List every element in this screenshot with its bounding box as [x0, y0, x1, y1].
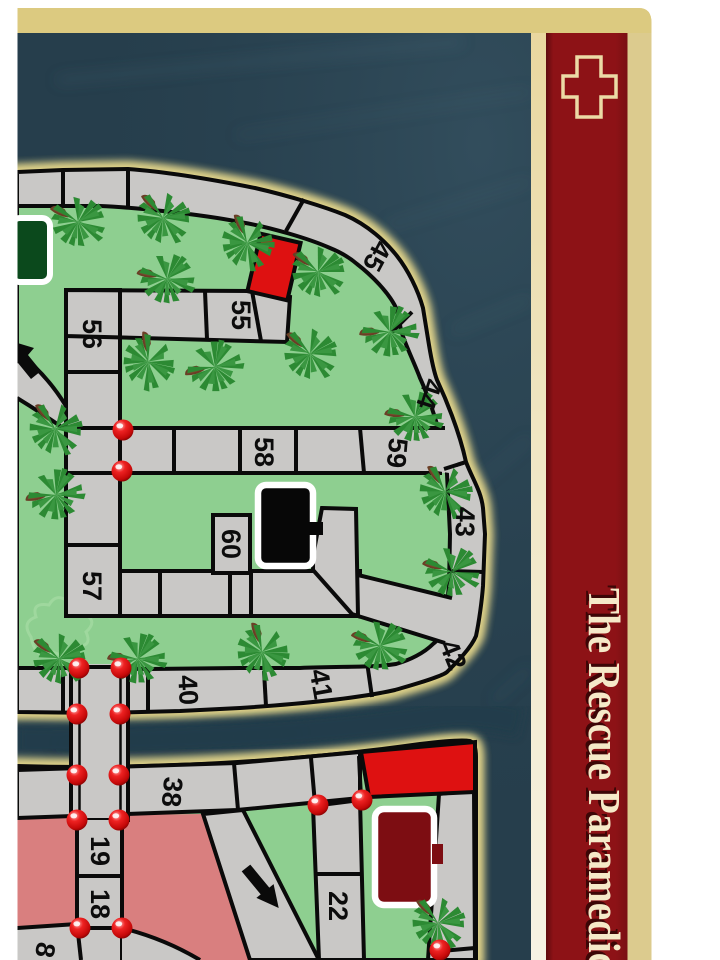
- svg-text:19: 19: [85, 836, 115, 866]
- svg-text:59: 59: [381, 437, 414, 470]
- svg-text:40: 40: [172, 674, 204, 706]
- svg-text:58: 58: [249, 437, 279, 467]
- svg-text:The Rescue Paramedic: The Rescue Paramedic: [578, 588, 629, 960]
- svg-text:55: 55: [226, 300, 256, 330]
- svg-text:60: 60: [216, 529, 246, 559]
- svg-text:57: 57: [77, 571, 107, 601]
- svg-text:43: 43: [449, 506, 480, 537]
- svg-text:22: 22: [323, 891, 353, 921]
- svg-text:56: 56: [77, 319, 107, 349]
- svg-text:18: 18: [85, 889, 115, 919]
- svg-text:38: 38: [156, 776, 189, 809]
- svg-text:41: 41: [304, 667, 339, 702]
